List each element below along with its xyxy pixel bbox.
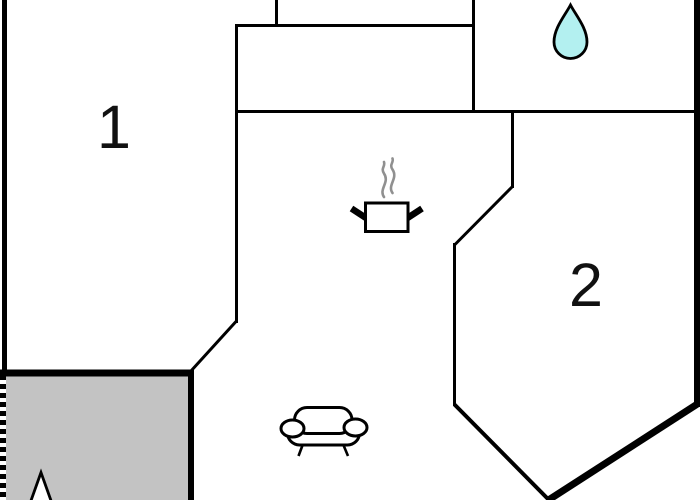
steam-line-right [391, 159, 394, 194]
wall-room2-lower-left-diagonal [455, 405, 550, 500]
steam-line-left [382, 162, 385, 197]
pot-body [366, 203, 409, 232]
wall-room2-lower-right-diagonal [547, 403, 699, 500]
sofa-armrest-right [344, 419, 367, 436]
pot-handle-left [352, 209, 367, 219]
floor-plan-canvas: 1 2 [0, 0, 700, 500]
wall-room1-diagonal [191, 322, 237, 372]
room-1-label: 1 [97, 93, 131, 161]
cooking-pot-icon [352, 159, 423, 232]
sofa-icon [281, 408, 367, 457]
room-2-label: 2 [569, 251, 603, 319]
pot-handle-right [408, 209, 423, 219]
sofa-armrest-left [281, 420, 304, 437]
floor-plan: 1 2 [0, 0, 700, 500]
terrace-area [6, 375, 188, 500]
water-drop-icon [554, 5, 587, 59]
wall-room2-upper-diagonal [455, 187, 513, 246]
